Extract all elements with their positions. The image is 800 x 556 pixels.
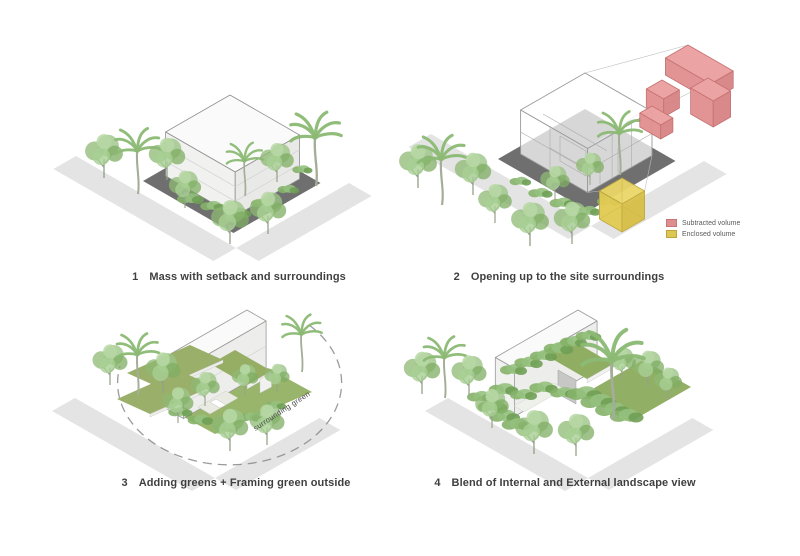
- figure-4-caption: 4Blend of Internal and External landscap…: [434, 477, 695, 489]
- figure-3-title: Adding greens + Framing green outside: [139, 477, 351, 489]
- diagram-3-canvas: surrounding green: [30, 303, 370, 493]
- legend: Subtracted volume Enclosed volume: [666, 219, 740, 241]
- figure-3-caption: 3Adding greens + Framing green outside: [121, 477, 350, 489]
- figure-2-caption: 2Opening up to the site surroundings: [454, 271, 665, 283]
- subtracted-volumes: [640, 45, 733, 139]
- diagram-4-canvas: [408, 298, 748, 493]
- figure-2-title: Opening up to the site surroundings: [471, 271, 665, 283]
- figure-1-number: 1: [132, 271, 138, 283]
- diagram-1-canvas: [40, 10, 370, 258]
- figure-2-number: 2: [454, 271, 460, 283]
- enclosed-volume-label: Enclosed volume: [682, 231, 735, 238]
- legend-item-subtracted: Subtracted volume: [666, 219, 740, 227]
- subtracted-volume-swatch: [666, 219, 677, 227]
- enclosed-volume-swatch: [666, 230, 677, 238]
- figure-1-caption: 1Mass with setback and surroundings: [132, 271, 346, 283]
- diagram-sheet: surrounding green: [0, 0, 800, 556]
- figure-4-title: Blend of Internal and External landscape…: [452, 477, 696, 489]
- figure-4-number: 4: [434, 477, 440, 489]
- figure-1-title: Mass with setback and surroundings: [149, 271, 346, 283]
- figure-3-number: 3: [121, 477, 127, 489]
- legend-item-enclosed: Enclosed volume: [666, 230, 740, 238]
- subtracted-volume-label: Subtracted volume: [682, 220, 740, 227]
